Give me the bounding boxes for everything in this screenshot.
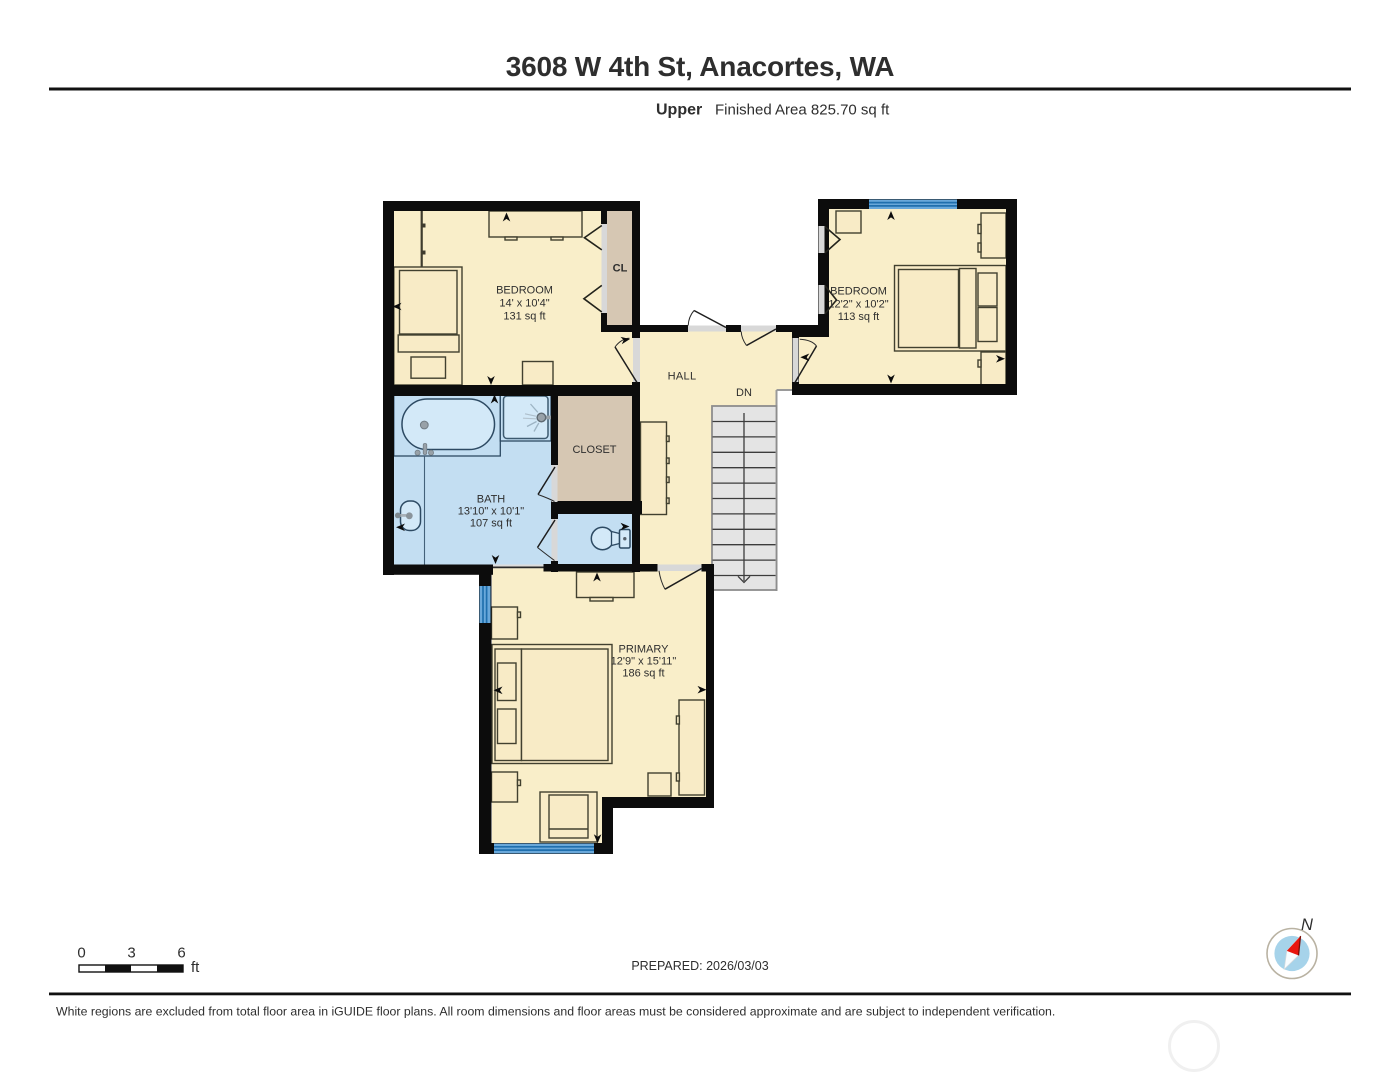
- svg-text:HALL: HALL: [668, 371, 697, 383]
- svg-text:186 sq ft: 186 sq ft: [622, 668, 664, 680]
- svg-text:BEDROOM: BEDROOM: [830, 286, 887, 298]
- svg-text:6: 6: [177, 945, 185, 962]
- svg-text:CL: CL: [613, 263, 628, 275]
- svg-text:0: 0: [77, 945, 85, 962]
- svg-text:PRIMARY: PRIMARY: [619, 644, 670, 656]
- svg-text:131 sq ft: 131 sq ft: [503, 311, 545, 323]
- svg-text:N: N: [1301, 916, 1313, 934]
- svg-text:CLOSET: CLOSET: [572, 444, 616, 456]
- svg-text:14' x 10'4": 14' x 10'4": [499, 298, 549, 310]
- svg-text:BATH: BATH: [477, 494, 506, 506]
- svg-text:13'10" x 10'1": 13'10" x 10'1": [458, 506, 525, 518]
- svg-text:DN: DN: [736, 387, 752, 399]
- svg-text:113 sq ft: 113 sq ft: [838, 311, 879, 323]
- svg-text:107 sq ft: 107 sq ft: [470, 518, 512, 530]
- svg-text:BEDROOM: BEDROOM: [496, 285, 553, 297]
- svg-text:12'2" x 10'2": 12'2" x 10'2": [828, 299, 888, 311]
- svg-text:3: 3: [127, 945, 135, 962]
- svg-text:Finished Area 825.70 sq ft: Finished Area 825.70 sq ft: [715, 102, 890, 119]
- svg-text:ft: ft: [191, 959, 200, 976]
- svg-text:3608 W 4th St, Anacortes, WA: 3608 W 4th St, Anacortes, WA: [506, 51, 895, 82]
- svg-text:Upper: Upper: [656, 102, 702, 119]
- svg-text:12'9" x 15'11": 12'9" x 15'11": [611, 656, 677, 668]
- svg-text:PREPARED: 2026/03/03: PREPARED: 2026/03/03: [631, 959, 768, 973]
- svg-text:White regions are excluded fro: White regions are excluded from total fl…: [56, 1005, 1055, 1019]
